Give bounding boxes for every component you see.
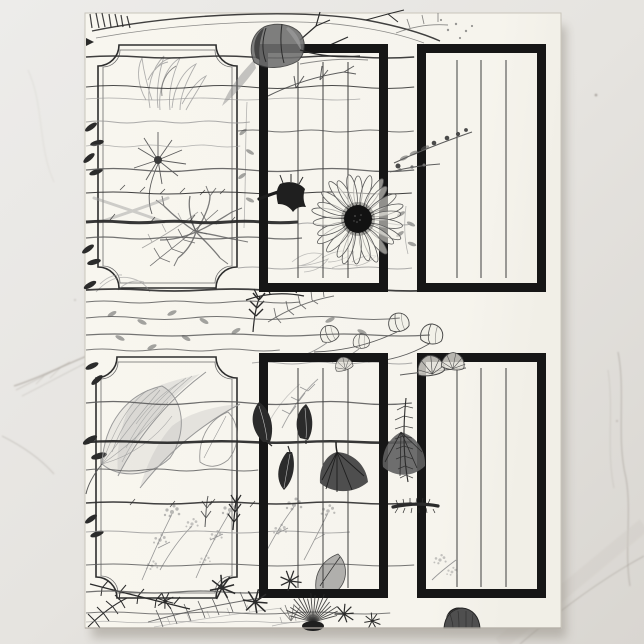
stem-line [86,441,412,443]
product-photo [0,0,644,644]
paper-sheet [81,10,566,638]
daisy-center [344,205,372,233]
